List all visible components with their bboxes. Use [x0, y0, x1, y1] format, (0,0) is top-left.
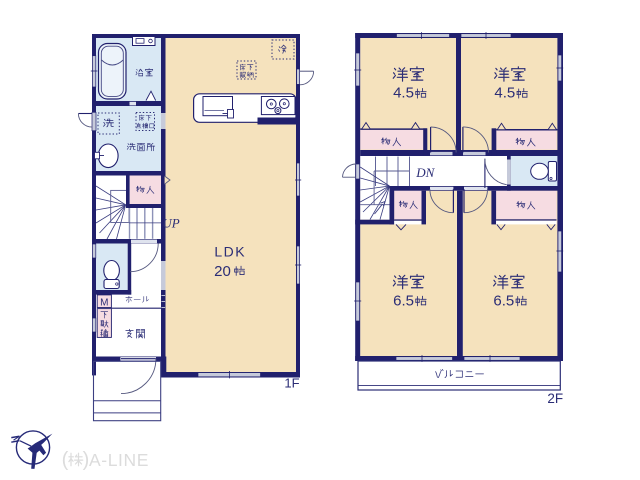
svg-text:4.5: 4.5: [393, 85, 414, 102]
svg-text:2F: 2F: [547, 391, 563, 406]
svg-text:4.5: 4.5: [494, 85, 515, 102]
svg-text:UP: UP: [162, 215, 179, 230]
svg-text:1F: 1F: [284, 376, 299, 391]
svg-text:M: M: [100, 298, 108, 309]
svg-text:6.5: 6.5: [393, 292, 414, 309]
svg-text:A-LINE: A-LINE: [89, 450, 149, 470]
svg-text:(: (: [62, 449, 69, 471]
svg-text:20: 20: [214, 263, 231, 280]
svg-text:LDK: LDK: [214, 244, 246, 260]
svg-text:DN: DN: [415, 165, 435, 180]
svg-text:6.5: 6.5: [493, 292, 514, 309]
